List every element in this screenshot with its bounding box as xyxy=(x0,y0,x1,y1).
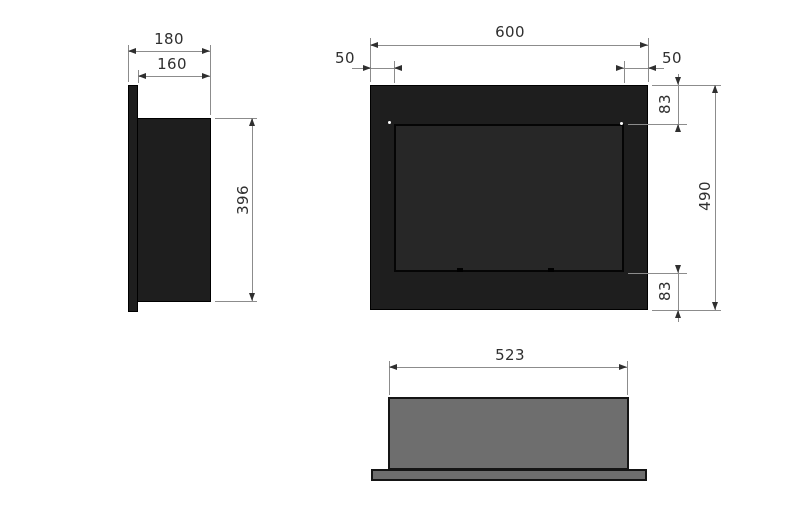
extension-line xyxy=(627,361,628,395)
extension-line xyxy=(215,301,257,302)
arrowhead-icon xyxy=(363,65,371,71)
technical-drawing-sheet: 180 160 396 600 50 xyxy=(0,0,800,518)
extension-line xyxy=(652,85,721,86)
arrowhead-icon xyxy=(249,118,255,126)
arrowhead-icon xyxy=(128,48,136,54)
dimension-line xyxy=(715,85,716,310)
arrowhead-icon xyxy=(640,42,648,48)
arrowhead-icon xyxy=(202,73,210,79)
dim-label-overall-depth: 180 xyxy=(154,30,184,48)
arrowhead-icon xyxy=(394,65,402,71)
dim-label-glass-inset-left: 50 xyxy=(335,49,355,67)
arrowhead-icon xyxy=(389,364,397,370)
extension-line xyxy=(210,45,211,115)
dim-label-overall-height: 490 xyxy=(696,181,714,211)
burner-tab-left xyxy=(457,268,463,272)
dim-label-body-depth: 160 xyxy=(157,55,187,73)
front-glass-opening xyxy=(394,124,624,272)
extension-line xyxy=(648,38,649,82)
extension-line xyxy=(652,310,721,311)
arrowhead-icon xyxy=(138,73,146,79)
dimension-line xyxy=(389,367,627,368)
dimension-line xyxy=(128,51,210,52)
dim-label-glass-inset-top: 83 xyxy=(656,94,674,114)
dimension-line xyxy=(252,118,253,301)
dim-label-bottom-body-width: 523 xyxy=(495,346,525,364)
screw-dot-right xyxy=(620,122,623,125)
dimension-line xyxy=(370,45,648,46)
arrowhead-icon xyxy=(202,48,210,54)
extension-line xyxy=(624,61,625,83)
bottom-view-body xyxy=(388,397,629,470)
screw-dot-left xyxy=(388,121,391,124)
burner-tab-right xyxy=(548,268,554,272)
arrowhead-icon xyxy=(712,302,718,310)
dim-label-glass-inset-right: 50 xyxy=(662,49,682,67)
arrowhead-icon xyxy=(619,364,627,370)
arrowhead-icon xyxy=(370,42,378,48)
arrowhead-icon xyxy=(616,65,624,71)
arrowhead-icon xyxy=(675,310,681,318)
arrowhead-icon xyxy=(648,65,656,71)
bottom-view-flange-bar xyxy=(371,469,647,481)
arrowhead-icon xyxy=(675,77,681,85)
dim-label-overall-width: 600 xyxy=(495,23,525,41)
side-view-body xyxy=(137,118,211,302)
arrowhead-icon xyxy=(712,85,718,93)
dimension-line xyxy=(138,76,210,77)
dim-label-body-height: 396 xyxy=(234,185,252,215)
arrowhead-icon xyxy=(249,293,255,301)
dimension-line xyxy=(352,68,400,69)
dim-label-glass-inset-bottom: 83 xyxy=(656,281,674,301)
arrowhead-icon xyxy=(675,124,681,132)
arrowhead-icon xyxy=(675,265,681,273)
